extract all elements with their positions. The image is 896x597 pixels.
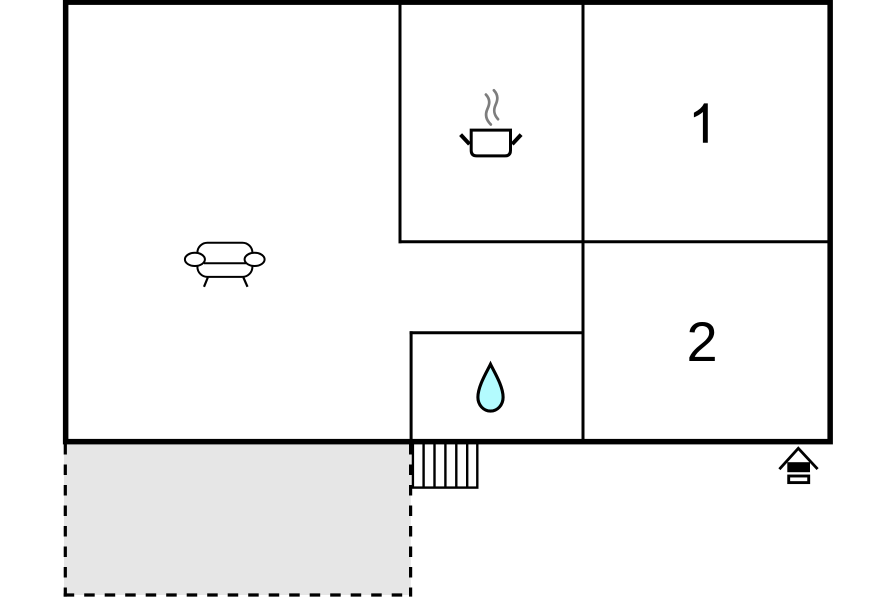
svg-text:2: 2 bbox=[687, 310, 718, 373]
